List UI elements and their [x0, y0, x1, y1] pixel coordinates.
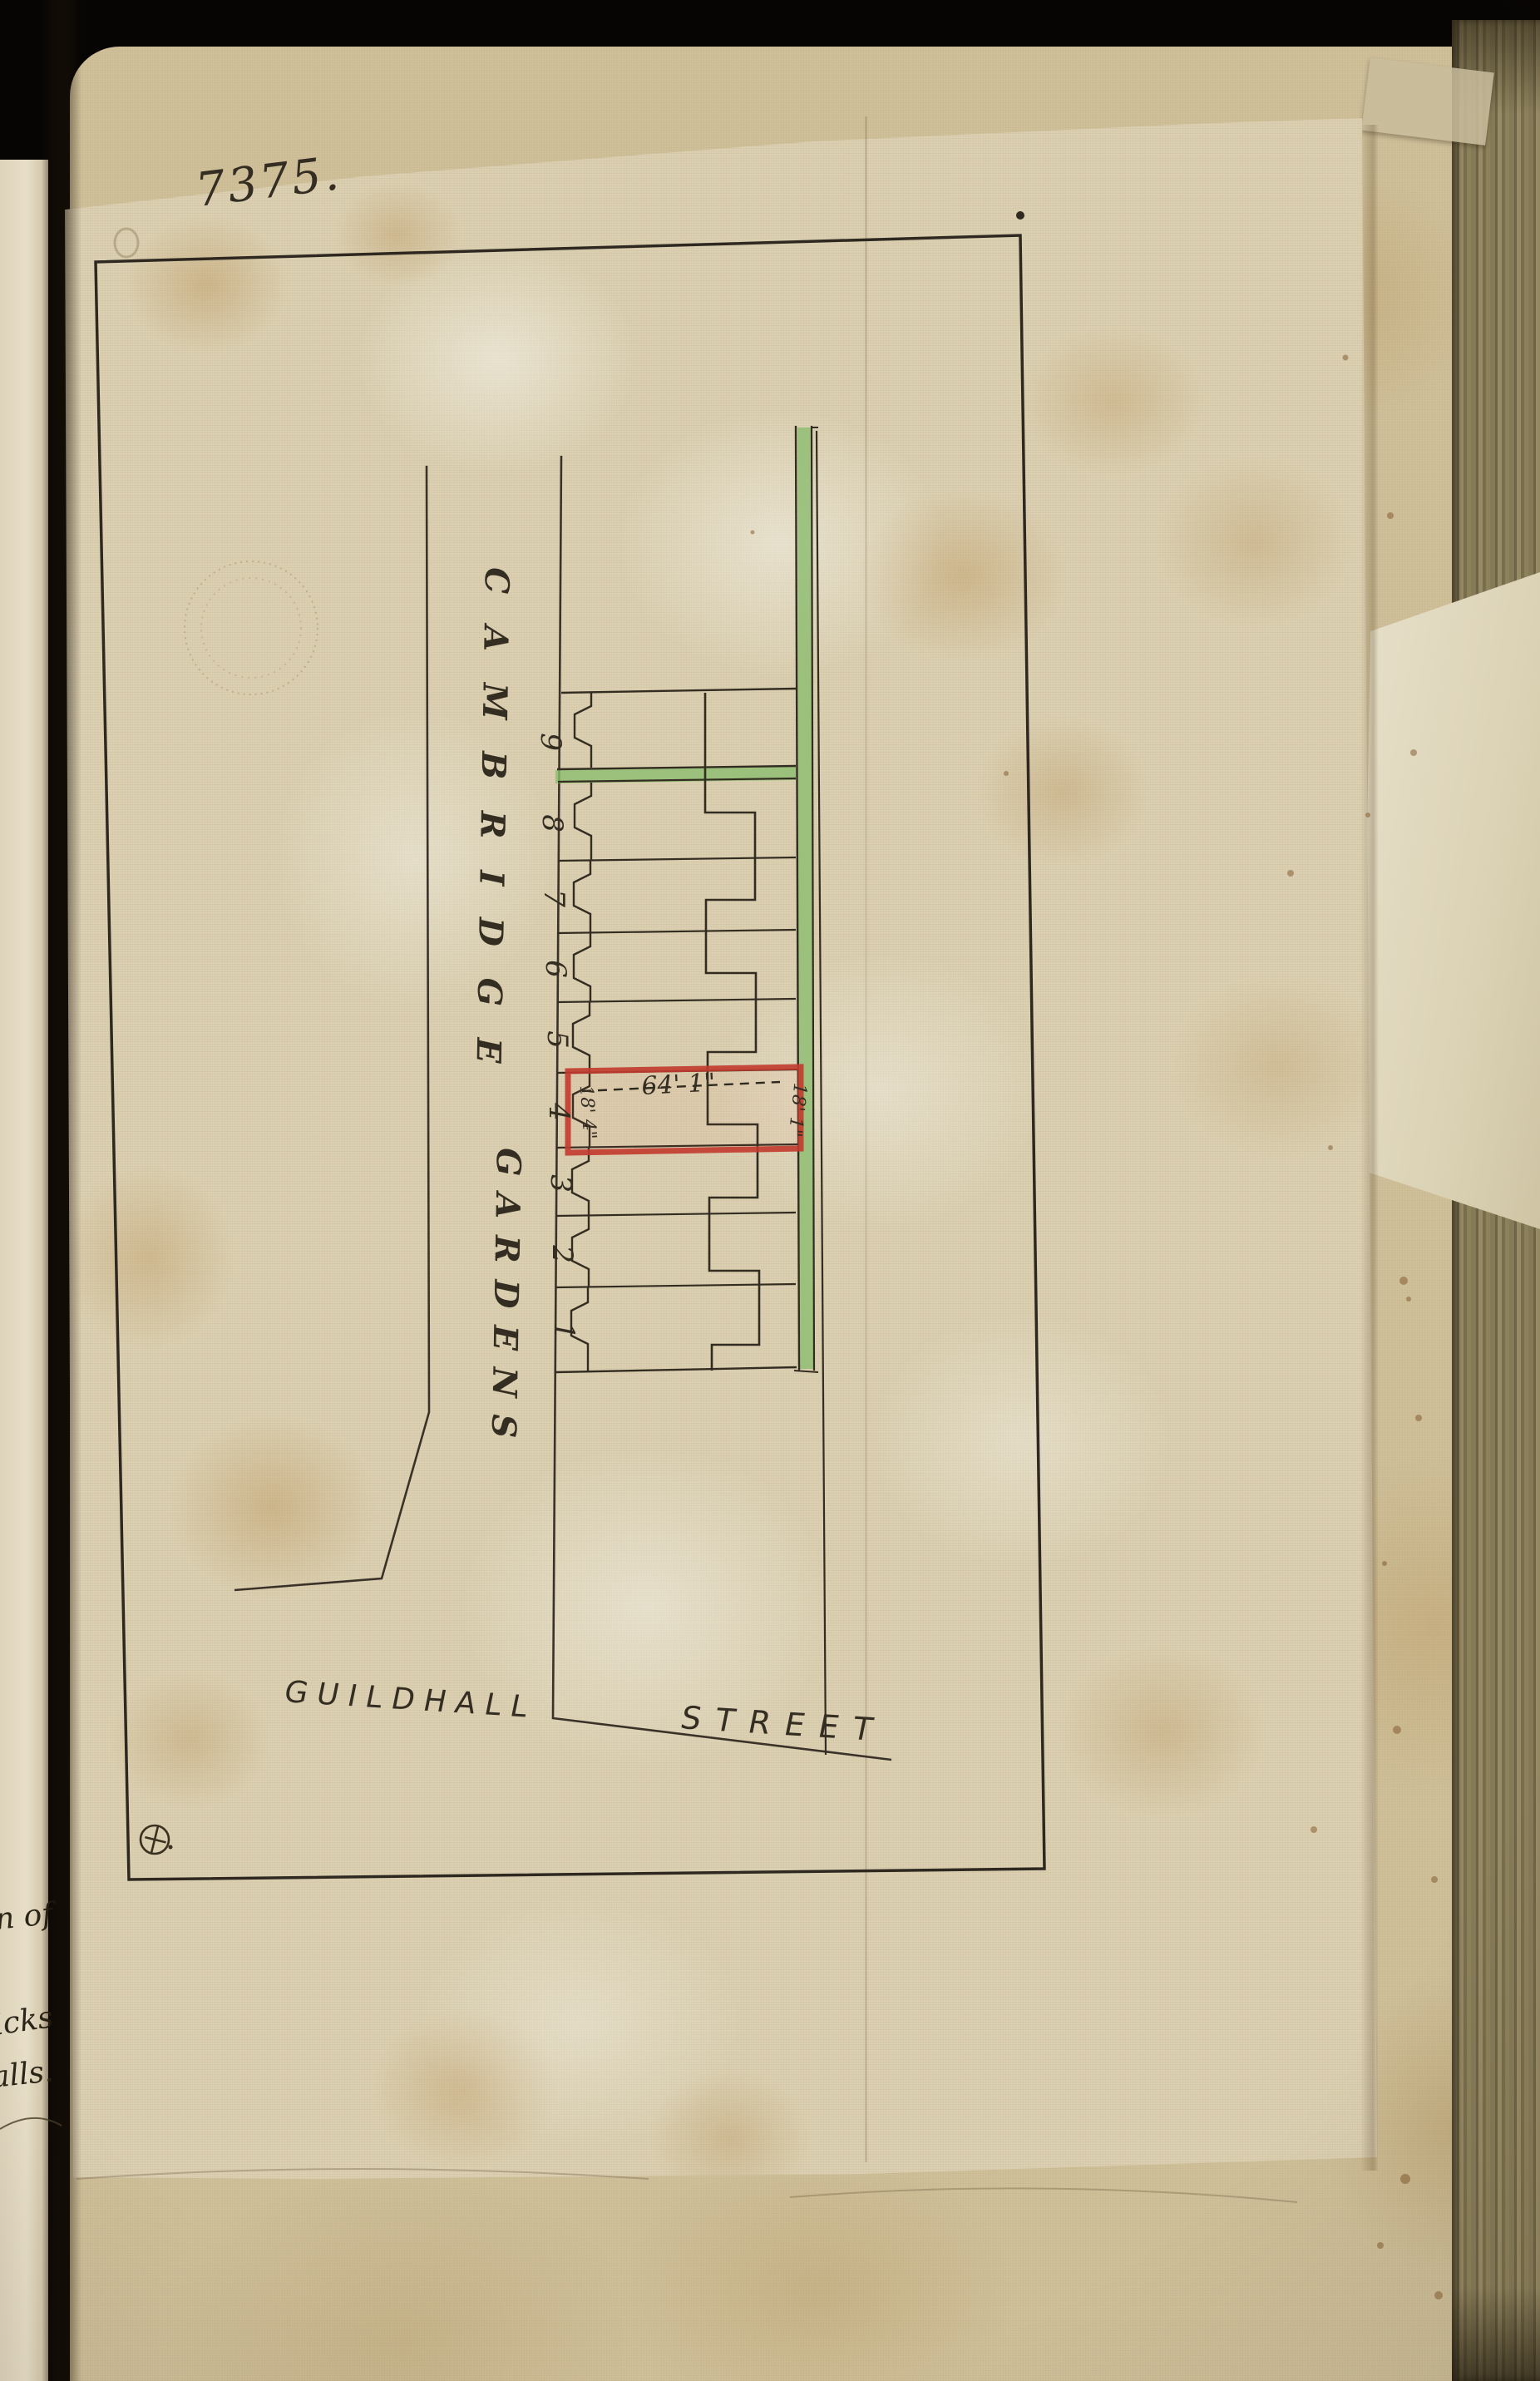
binding-guard-strip	[1361, 57, 1494, 146]
protruding-page-corner	[1354, 572, 1540, 1229]
handwriting-fragment: icks	[0, 2000, 56, 2043]
handwriting-fragment: alls.	[0, 2054, 55, 2095]
archival-book-scan: ation of icks alls. 7375.	[0, 0, 1540, 2381]
facing-page-edge: ation of icks alls.	[0, 160, 48, 2381]
handwriting-fragment: ation of	[0, 1897, 55, 1943]
plan-sheet	[65, 110, 1382, 2182]
